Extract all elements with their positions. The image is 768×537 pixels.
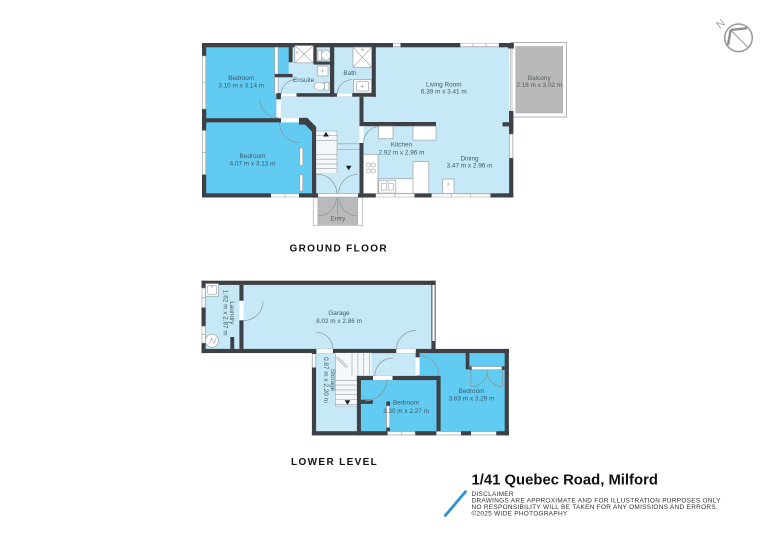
svg-text:Entry: Entry xyxy=(330,215,346,222)
svg-text:4.07 m x 3.13 m: 4.07 m x 3.13 m xyxy=(230,161,276,168)
svg-text:8.02 m x 2.86 m: 8.02 m x 2.86 m xyxy=(316,318,362,325)
svg-text:0.87 m x 2.20 m: 0.87 m x 2.20 m xyxy=(322,357,329,403)
svg-text:2.16 m x 3.02 m: 2.16 m x 3.02 m xyxy=(516,82,562,89)
svg-text:Garage: Garage xyxy=(328,310,350,317)
svg-text:Bedroom: Bedroom xyxy=(459,388,485,395)
svg-text:Storage: Storage xyxy=(329,369,336,392)
svg-text:Ensuite: Ensuite xyxy=(293,77,315,84)
svg-text:3.30 m x 2.27 m: 3.30 m x 2.27 m xyxy=(383,408,429,415)
svg-text:Bedroom: Bedroom xyxy=(240,153,266,160)
svg-text:Dining: Dining xyxy=(460,156,479,163)
svg-text:2.92 m x 2.96 m: 2.92 m x 2.96 m xyxy=(379,150,425,157)
svg-text:Bath: Bath xyxy=(343,70,357,77)
svg-text:3.47 m x 2.96 m: 3.47 m x 2.96 m xyxy=(447,163,493,170)
svg-text:3.83 m x 3.29 m: 3.83 m x 3.29 m xyxy=(449,396,495,403)
svg-text:3.10 m x 3.14 m: 3.10 m x 3.14 m xyxy=(218,82,264,89)
svg-text:Kitchen: Kitchen xyxy=(391,142,413,149)
svg-text:1/41 Quebec Road, Milford: 1/41 Quebec Road, Milford xyxy=(472,472,658,488)
svg-text:GROUND FLOOR: GROUND FLOOR xyxy=(289,244,387,255)
svg-text:©2025 WIDE PHOTOGRAPHY: ©2025 WIDE PHOTOGRAPHY xyxy=(472,510,568,518)
svg-text:Living Room: Living Room xyxy=(426,81,462,88)
svg-text:6.39 m x 3.41 m: 6.39 m x 3.41 m xyxy=(421,89,467,96)
svg-text:Bedroom: Bedroom xyxy=(228,75,254,82)
svg-text:Bedroom: Bedroom xyxy=(393,400,419,407)
svg-text:Balcony: Balcony xyxy=(528,75,552,82)
svg-text:LOWER LEVEL: LOWER LEVEL xyxy=(291,457,378,468)
svg-text:1.62 m x 2.87 m: 1.62 m x 2.87 m xyxy=(222,290,229,336)
